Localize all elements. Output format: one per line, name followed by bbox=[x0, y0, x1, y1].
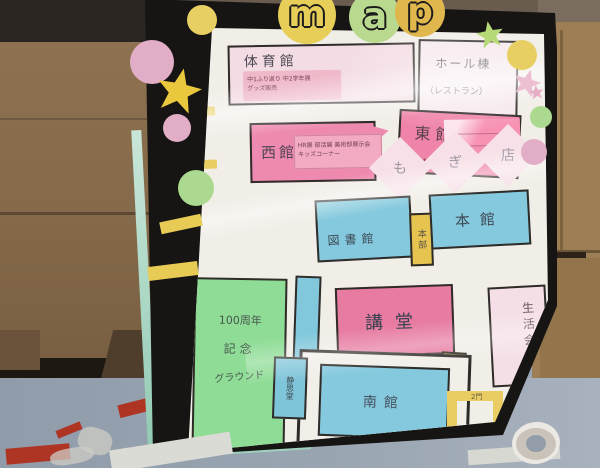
pink-circle-decoration bbox=[163, 114, 191, 142]
pink-circle-decoration bbox=[130, 40, 174, 84]
mogi-char-2: ぎ bbox=[448, 152, 462, 172]
hall-sublabel: （レストラン） bbox=[425, 83, 488, 97]
west-sticky-note: HR展 部活展 美術部展示会 キッズコーナー bbox=[294, 134, 383, 170]
west-building: 西館 HR展 部活展 美術部展示会 キッズコーナー bbox=[249, 121, 376, 183]
pink-circle-decoration bbox=[521, 139, 547, 165]
yellow-circle-decoration bbox=[187, 5, 217, 35]
west-label: 西館 bbox=[261, 141, 297, 163]
gym-sticky-note: 中1ふり返り 中2学年展 グッズ販売 bbox=[243, 70, 342, 102]
tape-roll-hole bbox=[526, 435, 546, 452]
map-board: 体育館 中1ふり返り 中2学年展 グッズ販売 ホール棟 （レストラン） 東館 高… bbox=[145, 0, 557, 467]
auditorium-label: 講堂 bbox=[365, 307, 426, 335]
seikatsu-hall-building: 生活会館 bbox=[487, 285, 550, 388]
gym-label: 体育館 bbox=[244, 50, 298, 71]
ground-label-line3: グラウンド bbox=[194, 364, 284, 387]
library-building: 図書館 bbox=[314, 196, 413, 263]
cardboard-box-flap bbox=[0, 330, 40, 370]
south-building-outline: 南館 bbox=[296, 349, 471, 451]
seikatsu-hall-label: 生活会館 bbox=[519, 301, 540, 374]
seishido-label: 静思堂 bbox=[284, 376, 296, 400]
mogi-char-1: も bbox=[393, 158, 407, 178]
mogi-char-3: 店 bbox=[501, 145, 515, 165]
gym-note-line2: グッズ販売 bbox=[247, 82, 339, 93]
main-building-label: 本館 bbox=[454, 208, 505, 232]
hall-building: ホール棟 （レストラン） bbox=[417, 39, 518, 119]
library-label: 図書館 bbox=[327, 229, 379, 249]
south-building: 南館 bbox=[318, 364, 450, 440]
main-gate-marker: 正門 bbox=[185, 106, 217, 169]
green-circle-decoration bbox=[530, 106, 552, 128]
gym-building: 体育館 中1ふり返り 中2学年展 グッズ販売 bbox=[227, 42, 415, 105]
hall-label: ホール棟 bbox=[435, 54, 491, 72]
green-circle-decoration bbox=[178, 170, 214, 206]
photo-scene: 体育館 中1ふり返り 中2学年展 グッズ販売 ホール棟 （レストラン） 東館 高… bbox=[0, 0, 600, 468]
gate-2-marker: 2門 bbox=[447, 391, 503, 431]
title-letter-p: p bbox=[407, 0, 433, 30]
gate-2-label: 2門 bbox=[471, 392, 482, 402]
ground-label-line1: 100周年 bbox=[196, 311, 285, 329]
title-letter-a: a bbox=[363, 0, 387, 35]
south-building-label: 南館 bbox=[363, 391, 406, 412]
board-black-surface: 体育館 中1ふり返り 中2学年展 グッズ販売 ホール棟 （レストラン） 東館 高… bbox=[145, 0, 557, 467]
title-letter-m: m bbox=[288, 0, 326, 33]
cardboard-box-seam bbox=[560, 30, 563, 250]
auditorium-building: 講堂 bbox=[335, 284, 455, 358]
tape-roll bbox=[512, 422, 560, 464]
main-building: 本館 bbox=[429, 189, 532, 249]
hq-label: 本部 bbox=[415, 228, 429, 250]
seishido-building: 静思堂 bbox=[272, 356, 308, 419]
ground-label-line2: 記念 bbox=[195, 339, 284, 358]
campus-map-poster: 体育館 中1ふり返り 中2学年展 グッズ販売 ホール棟 （レストラン） 東館 高… bbox=[185, 23, 551, 457]
west-note-line2: キッズコーナー bbox=[298, 148, 379, 158]
yellow-circle-decoration bbox=[507, 40, 537, 70]
